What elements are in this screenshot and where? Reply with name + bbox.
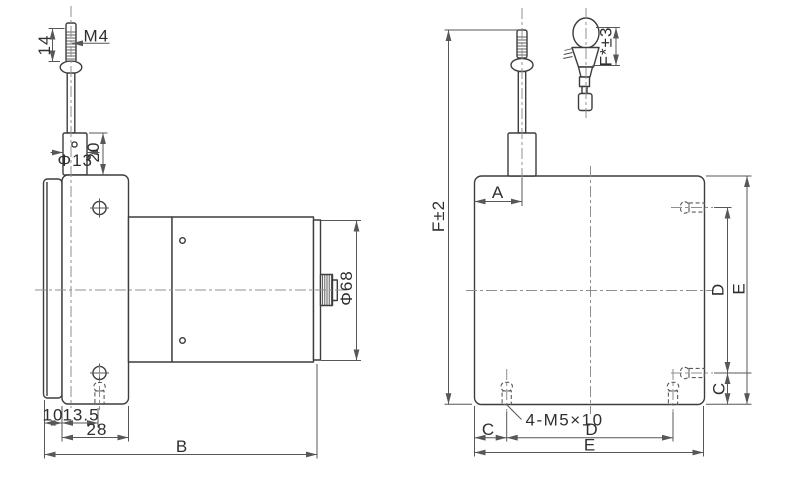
dim-label-f-grip: F*±3: [597, 27, 616, 67]
dim-label-c-right: C: [710, 382, 729, 395]
technical-drawing: 14 M4 Φ13 20 10: [0, 0, 800, 503]
dim-label-10: 10: [43, 406, 64, 425]
dim-label-14: 14: [35, 35, 54, 56]
dim-label-d-right: D: [709, 283, 728, 296]
dim-label-c-bottom: C: [482, 420, 495, 439]
dim-label-20: 20: [84, 142, 103, 163]
dim-label-e-right: E: [730, 282, 749, 294]
front-view: F±2 A F*±3 D C E: [429, 8, 752, 457]
dim-14: 14: [35, 29, 65, 62]
side-mounting-plate: [44, 179, 63, 398]
dim-label-28: 28: [87, 420, 108, 439]
screw-note: 4-M5×10: [508, 406, 604, 430]
screw-note-label: 4-M5×10: [526, 411, 604, 430]
dim-f-grip: F*±3: [593, 27, 621, 67]
dim-label-f-total: F±2: [429, 200, 448, 232]
dim-label-b: B: [176, 437, 188, 456]
dim-label-phi68: Φ68: [337, 270, 356, 305]
side-view: 14 M4 Φ13 20 10: [35, 6, 361, 459]
dim-label-m4: M4: [84, 27, 110, 46]
dim-label-a: A: [492, 183, 504, 202]
technical-drawing-canvas: 14 M4 Φ13 20 10: [0, 0, 800, 503]
grip-knurl-ticks: [563, 49, 572, 59]
grip-accessory: [563, 8, 599, 118]
dim-right-side: D C E: [706, 176, 752, 404]
grip-cylinder-upper: [580, 77, 590, 87]
dim-m4: M4: [72, 27, 110, 46]
grip-cylinder-lower: [579, 94, 593, 111]
dim-label-e-bottom: E: [584, 436, 596, 455]
